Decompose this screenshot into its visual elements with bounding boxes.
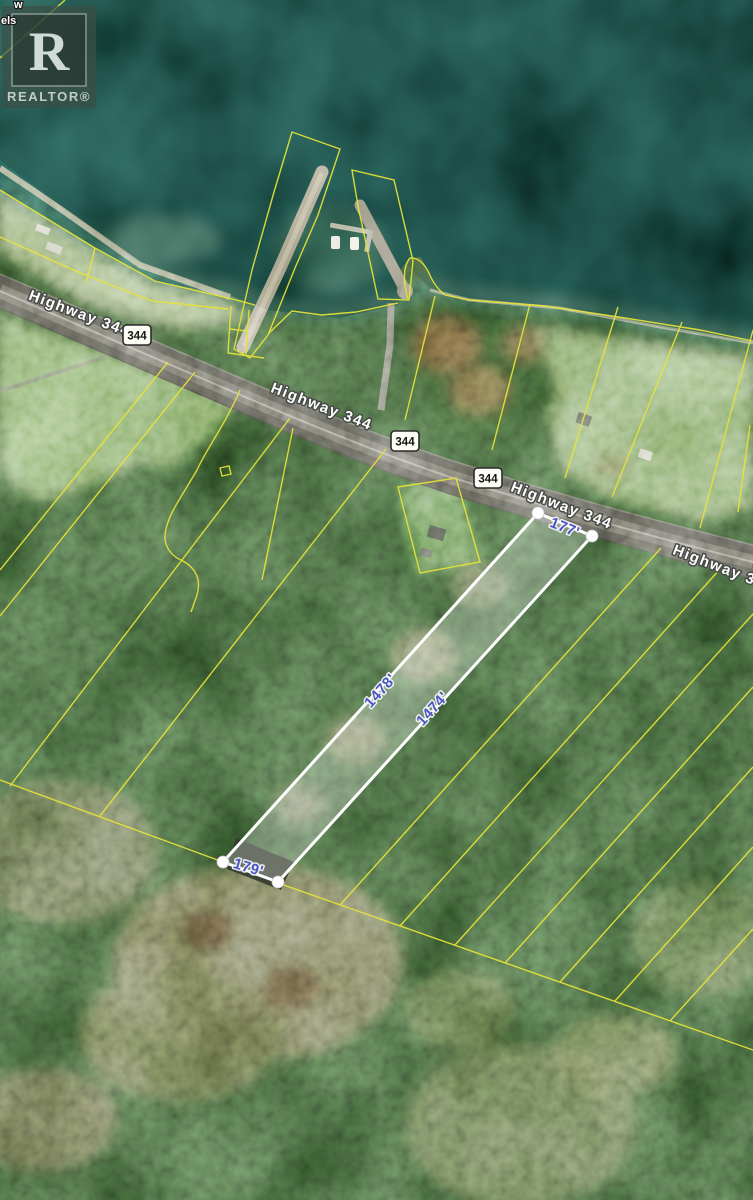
map-label-fragment-top: w	[13, 0, 23, 11]
map-viewport[interactable]: 177' 1478' 1474' 179' Highway 344 Highwa…	[0, 0, 753, 1200]
parcel-vertex-marker	[272, 876, 284, 888]
svg-text:344: 344	[127, 331, 147, 343]
route-shield-344: 344	[474, 468, 502, 488]
parcel-vertex-marker	[586, 530, 598, 542]
realtor-logo-r: R	[29, 21, 70, 83]
realtor-wordmark: REALTOR®	[7, 89, 91, 104]
satellite-map[interactable]: 177' 1478' 1474' 179' Highway 344 Highwa…	[0, 0, 753, 1200]
route-shield-344: 344	[391, 431, 419, 451]
route-shield-344: 344	[123, 325, 151, 345]
svg-text:344: 344	[478, 474, 498, 486]
svg-text:344: 344	[395, 437, 415, 449]
map-label-fragment-left: els	[1, 15, 16, 27]
parcel-vertex-marker	[217, 856, 229, 868]
parcel-vertex-marker	[532, 507, 544, 519]
